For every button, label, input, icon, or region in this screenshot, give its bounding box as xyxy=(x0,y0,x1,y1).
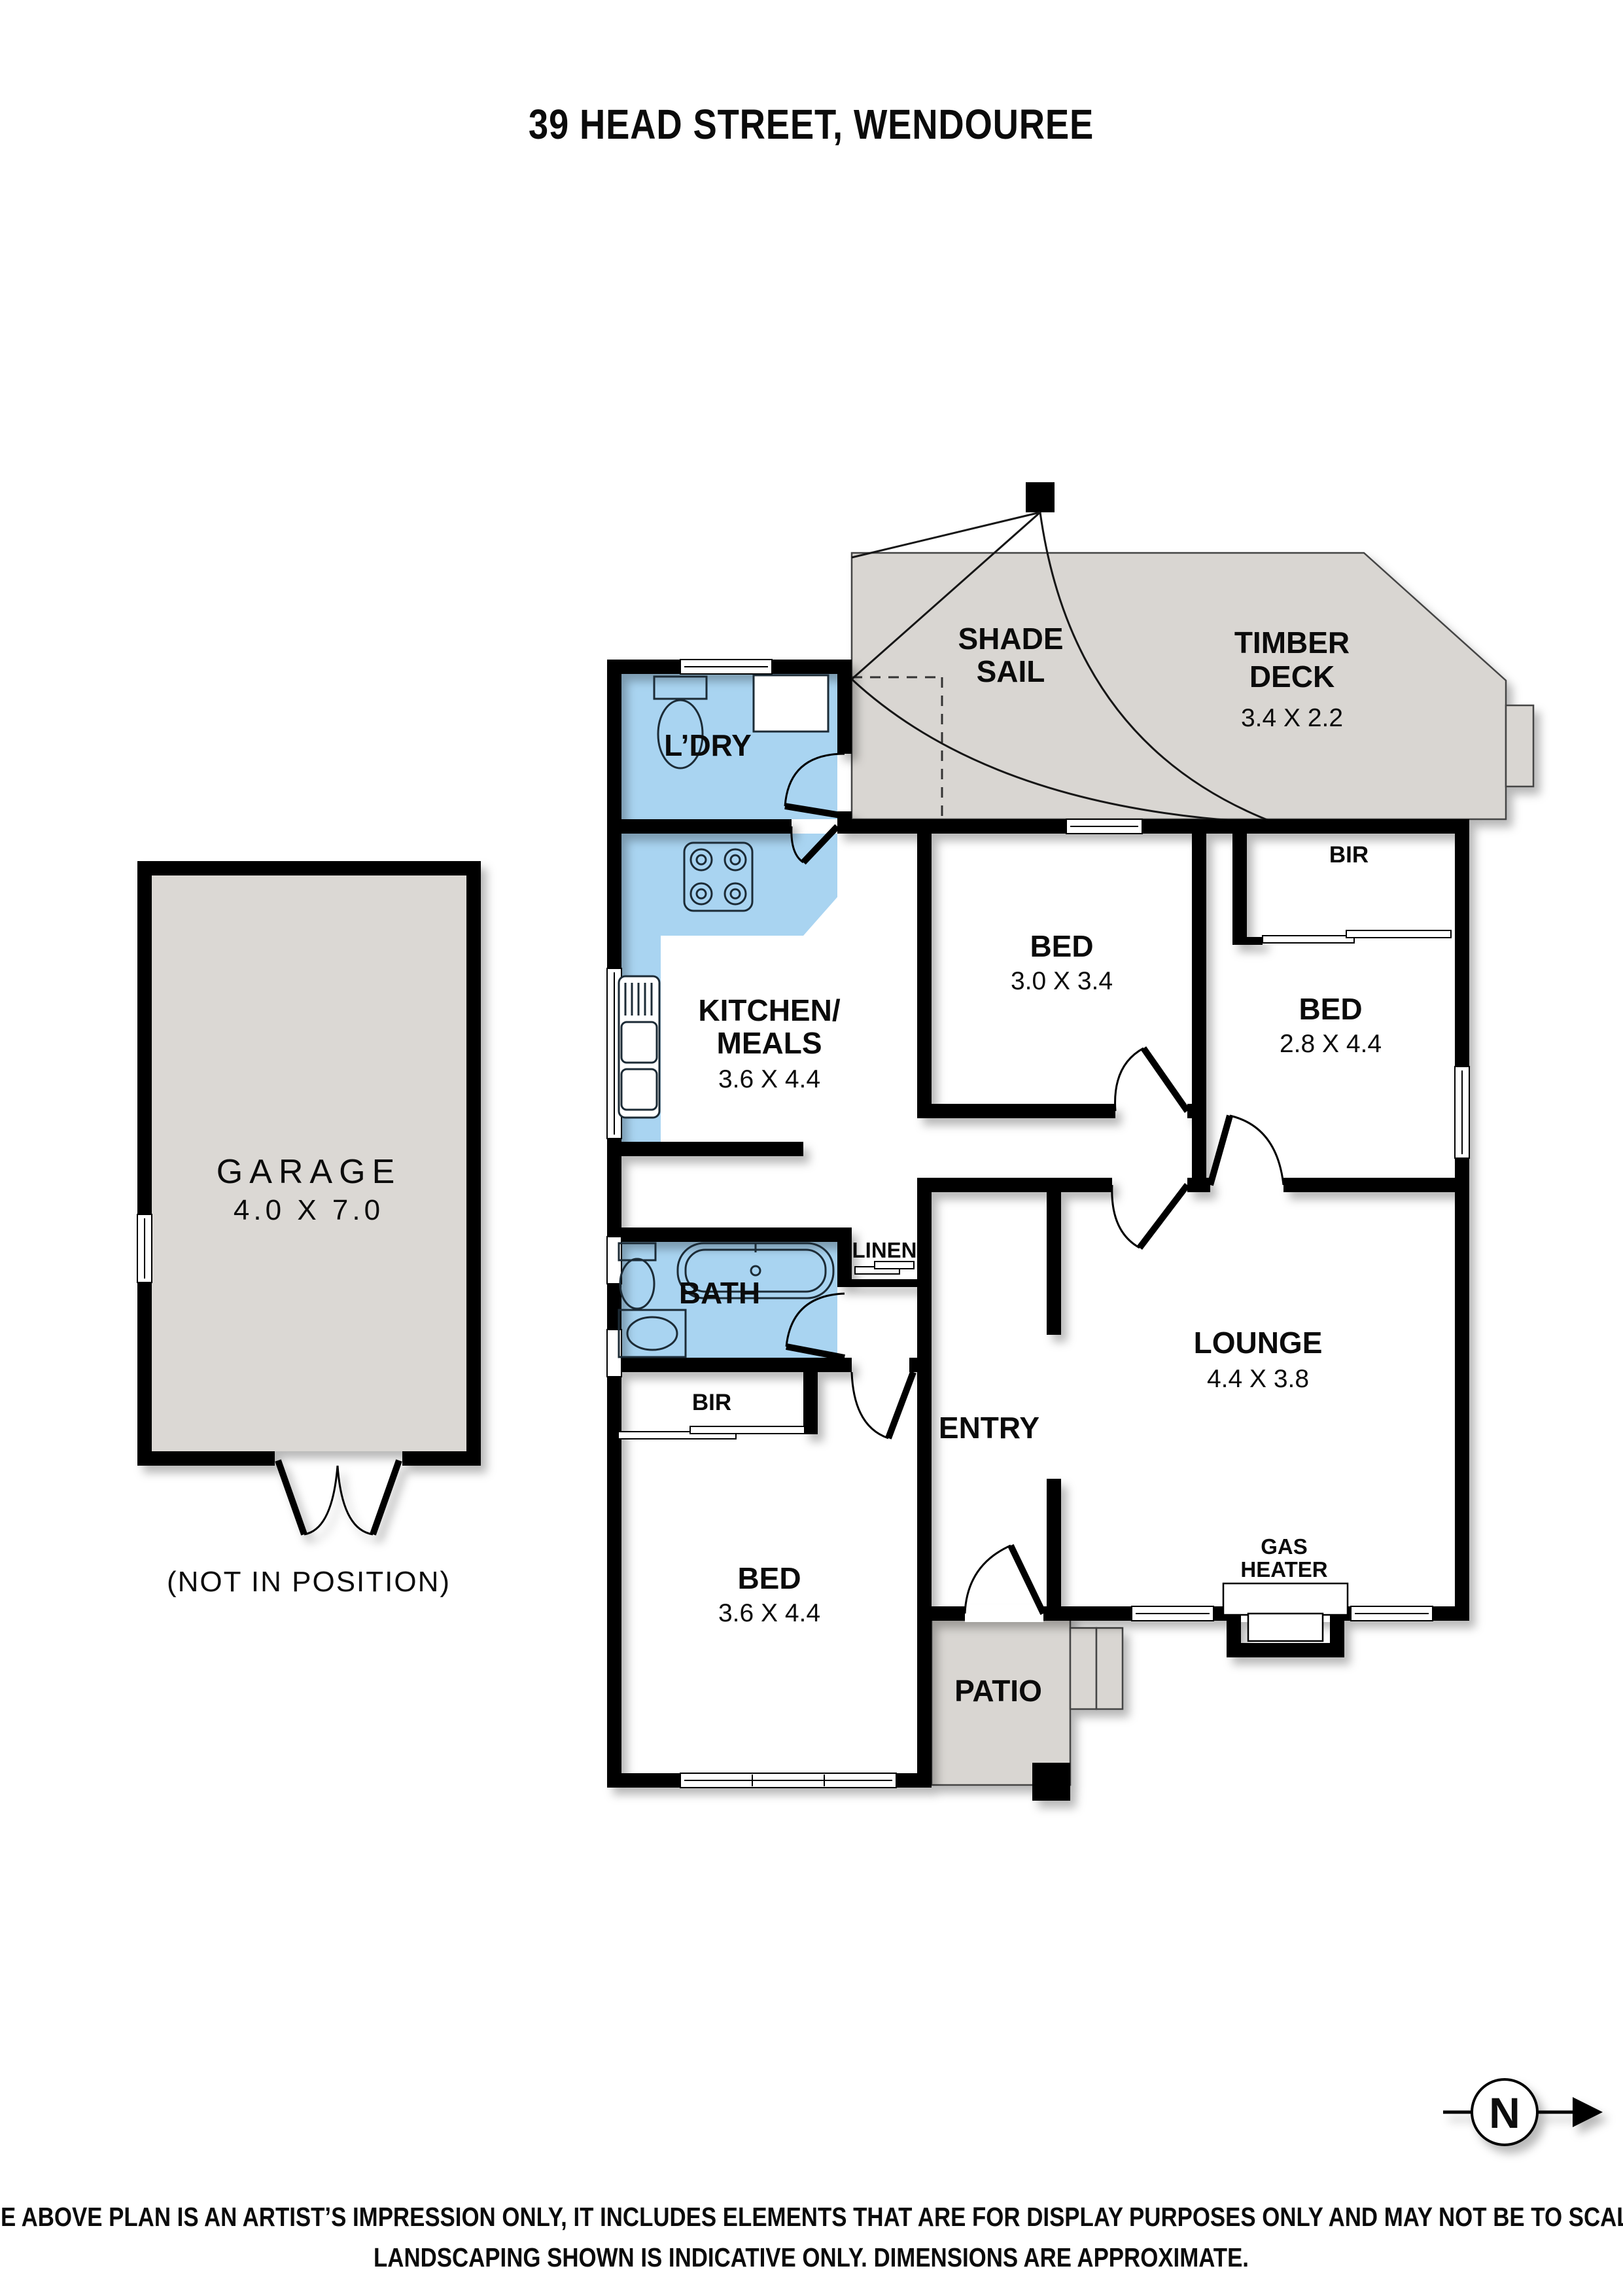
garage-label: GARAGE xyxy=(217,1153,402,1191)
kitchen-label-1: KITCHEN/ xyxy=(698,993,840,1027)
shade-sail-label-1: SHADE xyxy=(958,622,1063,656)
sail-post-icon xyxy=(1026,482,1055,512)
disclaimer-line-1-wrap: THE ABOVE PLAN IS AN ARTIST’S IMPRESSION… xyxy=(0,2202,1623,2232)
kitchen-dims: 3.6 X 4.4 xyxy=(718,1065,820,1093)
shade-sail-label-2: SAIL xyxy=(977,654,1045,688)
deck-label-2: DECK xyxy=(1249,660,1335,694)
linen-shelf-2 xyxy=(875,1262,914,1269)
disclaimer-line-2-wrap: LANDSCAPING SHOWN IS INDICATIVE ONLY. DI… xyxy=(374,2243,1249,2272)
bed1-label: BED xyxy=(1030,929,1093,963)
patio-label: PATIO xyxy=(954,1674,1042,1708)
bed3-door-arc xyxy=(852,1372,888,1438)
lounge-dims: 4.4 X 3.8 xyxy=(1207,1365,1309,1393)
garage-door-leaf-left xyxy=(278,1460,304,1534)
bir2-shelf-1 xyxy=(1263,936,1354,943)
patio-post-icon xyxy=(1032,1763,1070,1801)
bed3-bir-label: BIR xyxy=(692,1390,731,1415)
kitchen-sink-icon xyxy=(619,976,659,1118)
disclaimer-line-2: LANDSCAPING SHOWN IS INDICATIVE ONLY. DI… xyxy=(374,2243,1249,2272)
bed3-label: BED xyxy=(737,1561,801,1595)
patio-step-2 xyxy=(1096,1628,1123,1709)
bed2-dims: 2.8 X 4.4 xyxy=(1280,1030,1382,1058)
bed1-dims: 3.0 X 3.4 xyxy=(1011,967,1113,995)
front-door-arc xyxy=(965,1545,1011,1614)
address-title: 39 HEAD STREET, WENDOUREE xyxy=(529,101,1094,148)
bed3-door-leaf xyxy=(888,1372,913,1438)
garage-door-leaf-right xyxy=(373,1460,399,1534)
bed2-bir-label: BIR xyxy=(1329,842,1369,868)
floor-plan-page: 39 HEAD STREET, WENDOUREE xyxy=(0,0,1623,2296)
gas-heater-icon xyxy=(1223,1583,1348,1641)
garage-note: (NOT IN POSITION) xyxy=(167,1566,451,1598)
gas-heater-label-2: HEATER xyxy=(1240,1557,1327,1581)
lounge-label: LOUNGE xyxy=(1194,1326,1323,1360)
bed1-door-arc xyxy=(1115,1048,1143,1111)
floor-plan-svg: 39 HEAD STREET, WENDOUREE xyxy=(0,0,1623,2296)
bir2-shelf-2 xyxy=(1346,930,1451,938)
garage-door-arc-right xyxy=(338,1466,373,1534)
bed3-dims: 3.6 X 4.4 xyxy=(718,1599,820,1627)
bed2-label: BED xyxy=(1299,992,1362,1026)
bir3-shelf-2 xyxy=(690,1426,805,1434)
garage-door-arc-left xyxy=(304,1466,338,1534)
front-door-opening xyxy=(965,1605,1043,1622)
linen-label: LINEN xyxy=(852,1238,917,1262)
compass-arrowhead-icon xyxy=(1573,2097,1603,2127)
bath-label: BATH xyxy=(679,1276,760,1310)
sail-edge-1 xyxy=(852,512,1040,557)
compass-north-label: N xyxy=(1489,2089,1520,2137)
bed2-door-arc xyxy=(1230,1116,1283,1185)
bed1-door-leaf xyxy=(1143,1048,1187,1111)
bed2-door-leaf xyxy=(1210,1116,1230,1185)
laundry-label: L’DRY xyxy=(664,728,752,762)
deck-dims: 3.4 X 2.2 xyxy=(1241,704,1343,732)
entry-label: ENTRY xyxy=(939,1411,1039,1445)
deck-label-1: TIMBER xyxy=(1234,626,1350,660)
lounge-door-arc xyxy=(1112,1185,1140,1248)
laundry-trough-icon xyxy=(754,675,828,732)
garage-dims: 4.0 X 7.0 xyxy=(234,1194,384,1226)
disclaimer-line-1: THE ABOVE PLAN IS AN ARTIST’S IMPRESSION… xyxy=(0,2202,1623,2232)
lounge-door-leaf xyxy=(1140,1185,1187,1248)
front-door-leaf xyxy=(1011,1545,1043,1614)
compass: N xyxy=(1443,2079,1603,2145)
patio-step-1 xyxy=(1070,1628,1096,1709)
deck-step xyxy=(1506,705,1533,786)
gas-heater-label-1: GAS xyxy=(1261,1534,1308,1559)
page-title: 39 HEAD STREET, WENDOUREE xyxy=(529,101,1094,148)
kitchen-label-2: MEALS xyxy=(717,1026,822,1060)
